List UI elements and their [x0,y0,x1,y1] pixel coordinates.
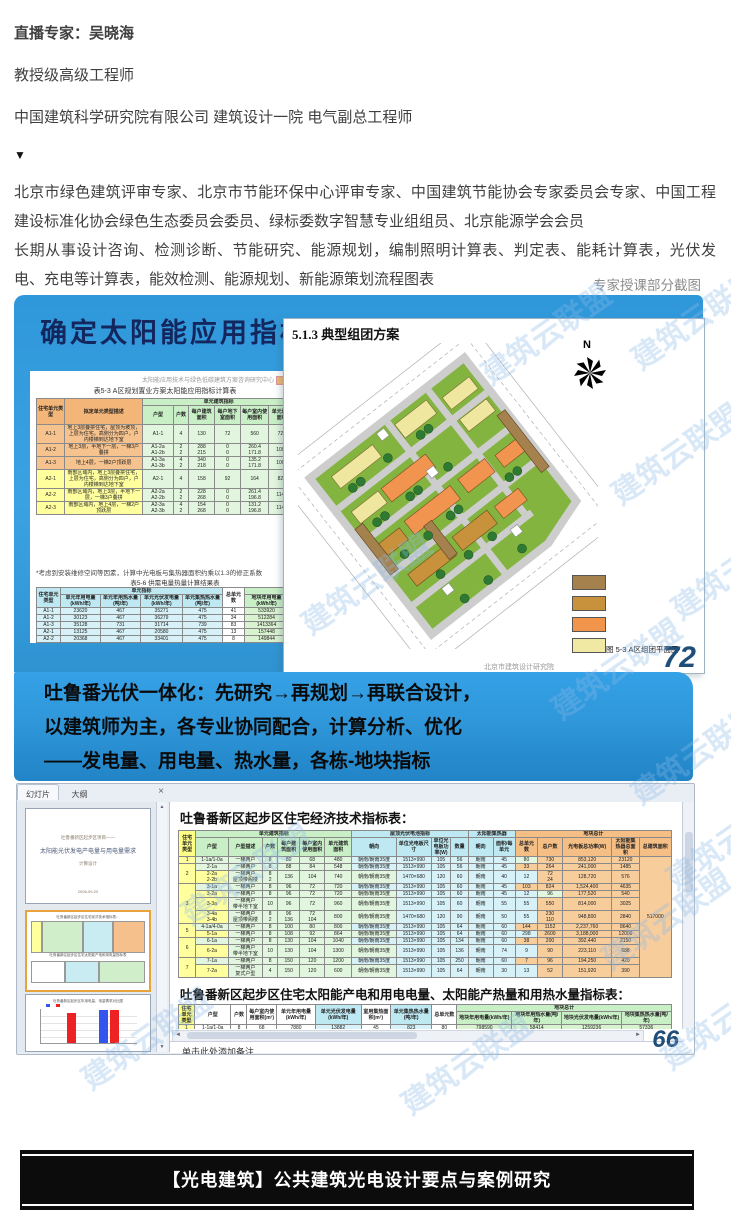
table-cell: 5 [179,924,196,938]
table-cell: 720 [325,884,352,891]
table-cell: 10 [263,945,278,958]
table-cell: 45 [493,884,515,891]
expert-org-line: 中国建筑科学研究院有限公司 建筑设计一院 电气副总工程师 [14,106,716,127]
table-cell: A2-1 [37,629,61,636]
table-cell: 420 [612,958,639,965]
table-cell: 740 [325,871,352,884]
table-cell: 392,440 [562,938,612,945]
table-header-cell: 单位光电板尺寸 [396,838,431,857]
table-cell: 朝南/朝南35度 [352,945,397,958]
table-cell: 136 [278,871,300,884]
table-cell: 朝南/朝南35度 [352,871,397,884]
table-cell: 41 [223,608,245,615]
table-header-cell: 光电板总功率(W) [562,838,612,857]
table-cell: 一梯两户 屋顶带阁楼 [228,911,263,924]
expert-title-line: 教授级高级工程师 [14,64,716,85]
table-header-cell: 住宅单元类型 [179,831,196,857]
table-cell: 朝南 [468,898,493,911]
site-plan [298,343,598,649]
table-cell: 105 [431,931,451,938]
table-header-cell: 总单元数 [432,1005,457,1025]
legend-swatch [572,617,606,632]
table-cell: 8 2 [263,871,278,884]
table-cell: 475 [183,608,223,615]
table-cell: 南部区域内，地上4层，一梯2户顶跃层 [65,502,143,515]
table-cell: 7 [515,958,537,965]
table-cell: 3 [179,884,196,924]
thumb1-line2: 太阳能光伏发电产电量与用电量需求 [26,846,150,855]
table-cell: 80 [300,924,325,931]
table-cell: 250 [451,958,468,965]
table-cell: 88 [278,864,300,871]
table-cell: 8 [263,884,278,891]
table-cell: 230 110 [538,911,563,924]
table-cell: 814,000 [562,898,612,911]
slide1-note: *考虑到安装维修空间等因素，计算中光电板与集热器面积约乘以1.3的修正系数 [36,567,262,577]
table-cell: 一梯两户 [228,958,263,965]
table-header-cell: 住宅单元类型 [179,1005,195,1025]
table-header-cell: 户型 [196,838,228,857]
ppt-notes-area[interactable]: 单击此处添加备注 [170,1041,683,1053]
table-cell: 730 [538,857,563,864]
table-cell: 一梯两户 [228,864,263,871]
table-cell: 1513×990 [396,857,431,864]
table-cell: 1 [179,857,196,864]
table-cell: 4 2 [173,502,188,515]
table-cell: 3-1a [196,884,228,891]
table-cell: 96 [278,891,300,898]
table-cell: 6-2a [196,945,228,958]
table-cell: 23120 [612,857,639,864]
table-cell: 52 [538,965,563,978]
tab-slides[interactable]: 幻灯片 [17,784,59,800]
table-cell: 8 [263,924,278,931]
table-header-cell: 单元光伏发电量(kWh/年) [315,1005,361,1025]
table-cell: 朝南 [468,931,493,938]
table-cell: 4 [173,425,188,444]
table-cell: 105 [431,864,451,871]
table-cell: 40 [493,871,515,884]
slide-typical-cluster-plan: 5.1.3 典型组团方案 N [283,318,705,674]
table-cell: 7 [179,958,196,978]
table-cell: 96 [278,884,300,891]
table-cell: 1513×990 [396,938,431,945]
table-header-cell: 住宅单元类型 [37,588,61,608]
table-cell: 8 2 [263,911,278,924]
table-header-cell: 每户室内使用面积 [240,406,268,425]
table-cell: 104 [300,938,325,945]
table-cell: 31714 [141,622,183,629]
table-cell: 72 104 [300,911,325,924]
table-cell: 960 [325,898,352,911]
table-cell: 朝南/朝南35度 [352,891,397,898]
table-cell: 157448 [245,629,289,636]
table-cell: 74 [493,945,515,958]
table-cell: 3-3a [196,898,228,911]
thumbnail-title-slide[interactable]: 吐鲁番新区起步区项目—— 太阳能光伏发电产电量与用电量需求 计算设计 2008-… [25,808,151,904]
table-cell: 8 [263,931,278,938]
table-cell: 1470×680 [396,871,431,884]
table-cell: 56 [451,864,468,871]
table-cell: A2-2a A2-2b [143,489,174,502]
mini-bar [99,1010,108,1043]
table-cell: 朝南/朝南35度 [352,884,397,891]
table-cell: 8 [263,857,278,864]
table-cell: 131.2 196.8 [240,502,268,515]
table-cell: 0 0 [215,444,241,457]
table-cell: 45 [361,1025,391,1030]
table-cell: 13882 [315,1025,361,1030]
table-header-cell: 屋顶光伏电池指标 [352,831,468,838]
table-cell: 4635 [612,884,639,891]
table-cell: 8 [231,1025,247,1030]
table-cell: 朝南 [468,891,493,898]
table-cell: 朝南/朝南35度 [352,931,397,938]
table-cell: 64 [451,931,468,938]
table-cell: 2150 [612,938,639,945]
table-cell: 一梯两户 [228,931,263,938]
table-cell: 80 [432,1025,457,1030]
ppt-main-slide-area: 吐鲁番新区起步区住宅经济技术指标表： 住宅单元类型单元建筑指标屋顶光伏电池指标太… [169,802,695,1052]
table-cell: 朝南 [468,924,493,931]
table-cell: 朝南/朝南35度 [352,864,397,871]
table-cell: 朝南/朝南35度 [352,965,397,978]
table-cell: 80 [278,857,300,864]
table-cell: 512284 [245,615,289,622]
table-cell: 55 [515,911,537,924]
table-cell: 8 [263,958,278,965]
table-cell: A1-1 [37,608,61,615]
table-cell: 92 [300,931,325,938]
table-cell: 72 [300,891,325,898]
thumb2-caption1: 吐鲁番新区起步区住宅经济技术指标表： [27,915,149,920]
thumbnail-chart-slide[interactable]: 吐鲁番新区起步区年用电量、电量需求对比图 [25,994,151,1052]
table-header-cell: 单元集热热水量(吨/年) [183,595,223,608]
table-cell: 149844 [245,636,289,643]
slide2-institute-footer: 北京市建筑设计研究院 [484,662,554,672]
table-cell: 340 218 [189,457,215,470]
table-cell: 177,520 [562,891,612,898]
table-cell: 80 [515,857,537,864]
ppt-table2-title: 吐鲁番新区起步区住宅太阳能产电和用电电量、太阳能产热量和用热水量指标表： [180,984,630,1003]
table-cell: 1470×680 [396,911,431,924]
table-cell: 64 [451,924,468,931]
table-cell: 4-1a/4-0a [196,924,228,931]
table-cell: 130 [278,938,300,945]
table-cell: 517000 [639,857,671,978]
table-cell: 1-1a/1-0a [194,1025,231,1030]
table-cell: 一梯两户 带半地下室 [228,945,263,958]
table-header-cell: 面积/每单元 [493,838,515,857]
table-cell: 8640 [612,924,639,931]
table-cell: 104 [300,871,325,884]
table-cell: 60 [451,884,468,891]
table-cell: 104 [300,945,325,958]
table-cell: 一梯两户 带半地下室 [228,898,263,911]
table-cell: 朝南 [468,945,493,958]
ppt-table1-title: 吐鲁番新区起步区住宅经济技术指标表： [180,808,414,827]
table-cell: 480 [325,857,352,864]
data-table: 住宅单元类型单元建筑指标屋顶光伏电池指标太阳能集热器地块总计户型户型描述户数每户… [178,830,672,978]
table-cell: 731 [101,622,141,629]
table-cell: 130 [278,945,300,958]
table-cell: 23620 [61,608,101,615]
table-cell: 158 [189,470,215,489]
thumb3-mini-bar-chart [40,1009,137,1044]
table-cell: 1-1a/1-0a [196,857,228,864]
table-header-cell: 单元年用电量(kWh/年) [61,595,101,608]
ppt-table1: 住宅单元类型单元建筑指标屋顶光伏电池指标太阳能集热器地块总计户型户型描述户数每户… [178,830,672,978]
table-cell: 241,000 [562,864,612,871]
table-cell: 地上3层叠拼住宅，屋顶为坡顶，上层为住宅，高侧分为四户，户内楼梯到达地下室 [65,425,143,444]
footer-banner-title: 【光电建筑】公共建筑光电设计要点与案例研究 [22,1154,692,1206]
table-cell: 20368 [61,636,101,643]
table-header-cell: 总建筑面积 [639,838,671,857]
table-header-cell: 总户数 [538,838,563,857]
expert-name-line: 直播专家：吴晓海 [14,22,716,43]
table-cell: 58414 [512,1025,562,1030]
table-cell: 1300 [325,945,352,958]
table-header-cell: 单元建筑指标 [143,399,295,406]
table-cell: 90 [451,911,468,924]
table-cell: 1413364 [245,622,289,629]
bio-paragraph-1: 北京市绿色建筑评审专家、北京市节能环保中心评审专家、中国建筑节能协会专家委员会专… [14,178,716,236]
table-cell: 739 [183,622,223,629]
table-cell: 朝南 [468,857,493,864]
table-cell: 30123 [61,615,101,622]
table-cell: 800 [325,924,352,931]
table-cell: 298 [515,931,537,938]
table-cell: A1-1 [143,425,174,444]
table-cell: 105 [431,938,451,945]
table-cell: A1-3 [37,622,61,629]
table-cell: 576 [612,871,639,884]
table-cell: 467 [101,615,141,622]
table-cell: A1-2 [37,615,61,622]
table-cell: 823 [391,1025,432,1030]
table-header-cell: 单元年用电量(kWh/年) [277,1005,316,1025]
table-cell: 3025 [612,898,639,911]
table-cell: A1-1 [37,425,65,444]
ppt-slide-thumbnails-sidebar: 吐鲁番新区起步区项目—— 太阳能光伏发电产电量与用电量需求 计算设计 2008-… [17,802,167,1052]
table-cell: 13 [515,965,537,978]
table-header-cell: 地块年用电量(kWh/年) [457,1012,512,1025]
table-header-cell: 单元光伏发电量(kWh/年) [141,595,183,608]
table-cell: 2 2 [173,444,188,457]
table-cell: 3-2a [196,891,228,898]
table-cell: 1,524,400 [562,884,612,891]
table-header-cell: 地块年用热水量(吨/年) [512,1012,562,1025]
notes-placeholder: 单击此处添加备注 [182,1047,254,1055]
table-cell: 朝南 [468,911,493,924]
table-cell: 1040 [325,938,352,945]
table-cell: 144 [515,924,537,931]
data-table: 住宅单元类型户型户数每户室内使用面积(m²)单元年用电量(kWh/年)单元光伏发… [178,1004,672,1029]
table-cell: 120 [300,965,325,978]
table-cell: 4 [173,470,188,489]
table-cell: 朝南 [468,884,493,891]
table-cell: 4 [263,965,278,978]
table-cell: 120 [300,958,325,965]
table-cell: 105 [431,898,451,911]
table-header-cell: 户数 [173,406,188,425]
table-cell: 地上3层，半地下一层，一梯3户叠拼 [65,444,143,457]
slide1-title: 确定太阳能应用指标 [40,311,310,350]
ppt-table2: 住宅单元类型户型户数每户室内使用面积(m²)单元年用电量(kWh/年)单元光伏发… [178,1004,672,1029]
table-header-cell: 户型 [143,406,174,425]
table-cell: 105 [431,884,451,891]
table-cell: 一梯两户 [228,938,263,945]
table-cell: 36279 [141,615,183,622]
table-header-cell: 总单元数 [515,838,537,857]
vertical-scrollbar[interactable] [682,802,695,1029]
table-cell: 96 136 [278,911,300,924]
table-cell: 12 [515,891,537,898]
table-cell: 151,920 [562,965,612,978]
table-cell: 30 [493,965,515,978]
table-header-cell: 户数 [263,838,278,857]
table-cell: 60 [493,938,515,945]
close-icon[interactable]: × [158,786,164,797]
table-cell: 108 [278,931,300,938]
site-plan-legend [572,575,606,659]
table-header-cell: 朝向 [468,838,493,857]
article-footer-banner: 【光电建筑】公共建筑光电设计要点与案例研究 [20,1150,694,1210]
scroll-left-icon[interactable]: ◄ [175,1032,181,1038]
table-cell: 150 [278,965,300,978]
thumbnail-tables-slide-selected[interactable]: 吐鲁番新区起步区住宅经济技术指标表： 吐鲁番新区起步区住宅太阳能产电和用电量指标… [25,910,151,992]
table-cell: 1513×990 [396,884,431,891]
sidebar-scrollbar[interactable]: ▲ ▼ [156,802,167,1052]
table-cell: 68 [247,1025,277,1030]
table-cell: 33 [515,864,537,871]
table-cell: 2 [179,864,196,884]
ppt-page-number: 66 [652,1028,679,1052]
table-cell: A1-2a A1-2b [143,444,174,457]
slide2-title: 5.1.3 典型组团方案 [292,324,399,343]
table-cell: 34 [223,615,245,622]
scroll-right-icon[interactable]: ► [635,1032,641,1038]
banner-line-3: ——发电量、用电量、热水量，各栋-地块指标 [14,745,693,779]
table-cell: 7-2a [196,965,228,978]
table-header-cell: 住宅单元类型 [37,399,65,425]
table-cell: 5-1a [196,931,228,938]
table-cell: A2-1 [37,470,65,489]
table-cell: A2-2 [37,636,61,643]
table-cell: 105 [431,891,451,898]
table-cell: 154 268 [189,502,215,515]
table-cell: 一梯两户 [228,857,263,864]
table-cell: 8 [263,864,278,871]
table-cell: 3-4a 3-4b [196,911,228,924]
table-cell: 105 [431,924,451,931]
table-cell: A2-2 [37,489,65,502]
table-header-cell: 户型描述 [228,838,263,857]
table-cell: 1513×990 [396,898,431,911]
table-cell: 72 [300,898,325,911]
table-cell: 45 [493,864,515,871]
table-header-cell: 户型 [194,1005,231,1025]
thumb1-line4: 2008-09-20 [26,889,150,894]
table-cell: 60 [493,924,515,931]
slide-turpan-banner: 吐鲁番光伏一体化：先研究→再规划→再联合设计， 以建筑师为主，各专业协同配合，计… [14,672,693,781]
table-cell: 798590 [457,1025,512,1030]
thumb3-legend [42,1004,62,1008]
table-header-cell: 地块年用电量(kWh/年) [245,595,289,608]
slide1-table1-caption: 表5-3 A区规划置业方案太阳能应用指标计算表 [30,386,300,396]
table-cell: 一梯两户 屋顶带阁楼 [228,871,263,884]
table-cell: 地上4层，一梯2户顶跃层 [65,457,143,470]
table-cell: 72 [215,425,241,444]
table-cell: 朝南/朝南35度 [352,938,397,945]
scroll-down-icon[interactable]: ▼ [157,1044,167,1050]
table-header-cell: 单元指标 [61,588,223,595]
table-cell: 60 [493,958,515,965]
table-cell: 390 [612,965,639,978]
table-cell: 8 [223,636,245,643]
table-cell: 467 [101,608,141,615]
table-cell: 8 [263,938,278,945]
table-cell: 853,120 [562,857,612,864]
table-cell: 3,188,000 [562,931,612,938]
table-cell: 2-2a 2-2b [196,871,228,884]
table-cell: 13 [223,629,245,636]
scroll-up-icon[interactable]: ▲ [157,804,167,810]
table-cell: 467 [101,636,141,643]
banner-line-2: 以建筑师为主，各专业协同配合，计算分析、优化 [14,711,693,745]
table-cell: 10 [263,898,278,911]
table-cell: 南部区域内，地上3层，半地下一层，一梯3户叠拼 [65,489,143,502]
table-header-cell: 地块集热热水量(吨/年) [621,1012,671,1025]
table-cell: 7-1a [196,958,228,965]
table-cell: 4 2 [173,457,188,470]
table-cell: 2,237,760 [562,924,612,931]
powerpoint-window: 幻灯片 大纲 × 吐鲁番新区起步区项目—— 太阳能光伏发电产电量与用电量需求 计… [16,783,695,1055]
table-cell: 一梯两户 [228,884,263,891]
table-cell: 一梯两户 复式户型 [228,965,263,978]
expert-intro: 直播专家：吴晓海 教授级高级工程师 中国建筑科学研究院有限公司 建筑设计一院 电… [14,22,716,294]
table-cell: 105 [431,958,451,965]
table-cell: 2-1a [196,864,228,871]
table-header-cell: 每户室内使用面积(m²) [247,1005,277,1025]
table-cell: 105 [431,945,451,958]
table-cell: 1259236 [562,1025,621,1030]
table-cell: 105 [431,857,451,864]
table-cell: 45 [493,891,515,898]
ppt-tab-bar: 幻灯片 大纲 × [17,784,167,803]
table-cell: 2 2 [173,489,188,502]
table-cell: 55 [515,898,537,911]
table-cell: 688 [612,945,639,958]
table-cell: A1-3 [37,457,65,470]
table-cell: 548 [325,864,352,871]
table-cell: 朝南 [468,965,493,978]
table-cell: 800 [325,911,352,924]
slide2-page-number: 72 [663,643,696,673]
slide1-table2-caption: 表5-6 供需电量热量计算结果表 [30,577,320,587]
table-header-cell: 单元建筑指标 [196,831,352,838]
table-cell: 1513×990 [396,891,431,898]
table-cell: 261.4 196.8 [240,489,268,502]
table-cell: 0 0 [215,502,241,515]
tab-outline[interactable]: 大纲 [63,785,95,800]
table-cell: 1485 [612,864,639,871]
table-header-cell: 地块总计 [515,831,671,838]
table-header-cell: 每户建筑面积 [189,406,215,425]
table-cell: 96 [538,958,563,965]
table-cell: 朝南 [468,958,493,965]
table-cell: 1513×990 [396,924,431,931]
